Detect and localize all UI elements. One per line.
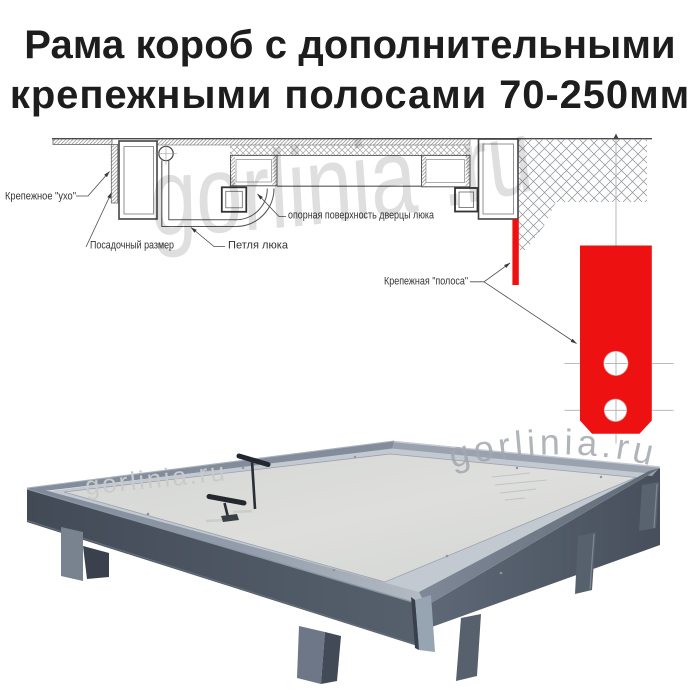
svg-text:Крепежная "полоса": Крепежная "полоса" — [384, 276, 468, 288]
svg-text:.ru: .ru — [434, 95, 538, 230]
svg-text:Крепежное "ухо": Крепежное "ухо" — [5, 191, 76, 203]
svg-text:gorlinia: gorlinia — [149, 111, 421, 259]
